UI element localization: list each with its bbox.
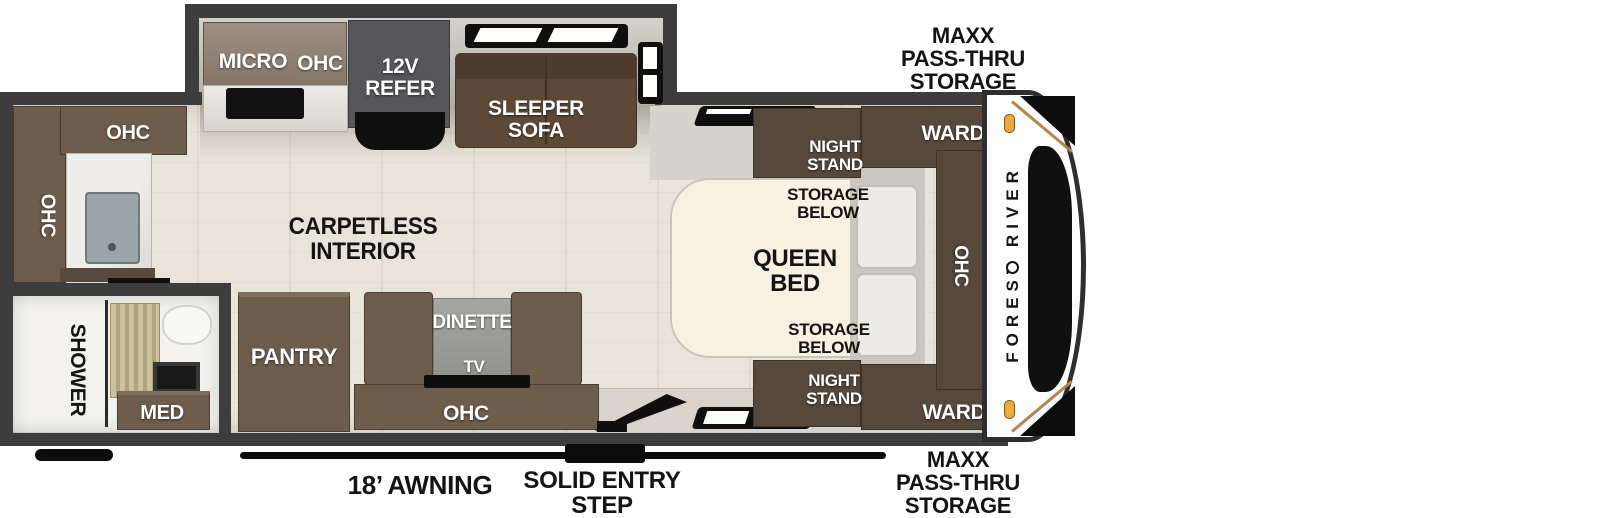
ward-top-label: WARD (913, 123, 993, 145)
top-wall-rear (0, 92, 202, 106)
dinette-bench-right (511, 292, 582, 385)
rear-ohc-side-label: OHC (37, 156, 58, 276)
forest-river-logo-icon (1006, 261, 1019, 274)
awning-label: 18’ AWNING (320, 472, 520, 499)
sleeper-sofa-label: SLEEPER SOFA (486, 98, 586, 142)
front-storage-bottom-label: MAXX PASS-THRU STORAGE (858, 448, 1058, 517)
rear-ohc-top-label: OHC (88, 123, 168, 144)
rear-sink (85, 192, 140, 264)
storage-below-top-label: STORAGE BELOW (778, 186, 878, 222)
marker-light-top (1004, 114, 1015, 133)
tv-unit (424, 375, 530, 388)
tv-label: TV (448, 358, 500, 376)
storage-below-bottom-label: STORAGE BELOW (779, 321, 879, 357)
pantry-label: PANTRY (240, 345, 348, 368)
window-pane (703, 411, 749, 424)
bath-side-wall (219, 283, 231, 446)
bath-top-wall (0, 283, 231, 296)
shower-label: SHOWER (66, 310, 88, 430)
night-stand-bottom-label: NIGHT STAND (784, 372, 884, 408)
refrigerator-base (355, 112, 445, 150)
entry-door-sill (597, 421, 627, 432)
window-pane (643, 75, 657, 97)
window-pane (706, 109, 752, 114)
carpetless-interior-label: CARPETLESS INTERIOR (269, 214, 457, 264)
shower-glass (105, 300, 108, 427)
queen-bed-label: QUEEN BED (735, 246, 855, 296)
window-pane (548, 28, 619, 42)
windshield (1028, 146, 1072, 392)
awning-line (240, 452, 886, 459)
dinette-bench-left (364, 292, 433, 385)
rear-sink-drain (108, 243, 116, 251)
night-stand-top-label: NIGHT STAND (785, 138, 885, 174)
entry-step-label: SOLID ENTRY STEP (502, 468, 702, 518)
slide-side-window (638, 42, 663, 104)
bedroom-ohc-label: OHC (950, 206, 970, 326)
slide-top-window (465, 24, 628, 48)
rear-bumper-bar (35, 449, 113, 461)
window-pane (474, 28, 543, 42)
dinette-label: DINETTE (420, 313, 524, 333)
kitchen-ohc-label: OHC (294, 53, 346, 75)
rear-wall (0, 92, 13, 446)
med-label: MED (122, 403, 202, 424)
dinette-ohc-label: OHC (426, 403, 506, 425)
micro-label: MICRO (212, 51, 294, 73)
marker-light-bottom (1004, 400, 1015, 419)
bath-cabinet-dark (153, 362, 200, 393)
toilet (162, 305, 212, 345)
entry-step-bar (565, 444, 645, 463)
front-storage-top-label: MAXX PASS-THRU STORAGE (863, 24, 1063, 93)
window-pane (643, 47, 657, 69)
refer-label: 12V REFER (354, 56, 446, 100)
rv-floorplan: OHC OHC SHOWER MED MICRO OHC 12V REFER S… (0, 0, 1600, 518)
bottom-wall (0, 432, 1008, 446)
cooktop (226, 88, 304, 119)
